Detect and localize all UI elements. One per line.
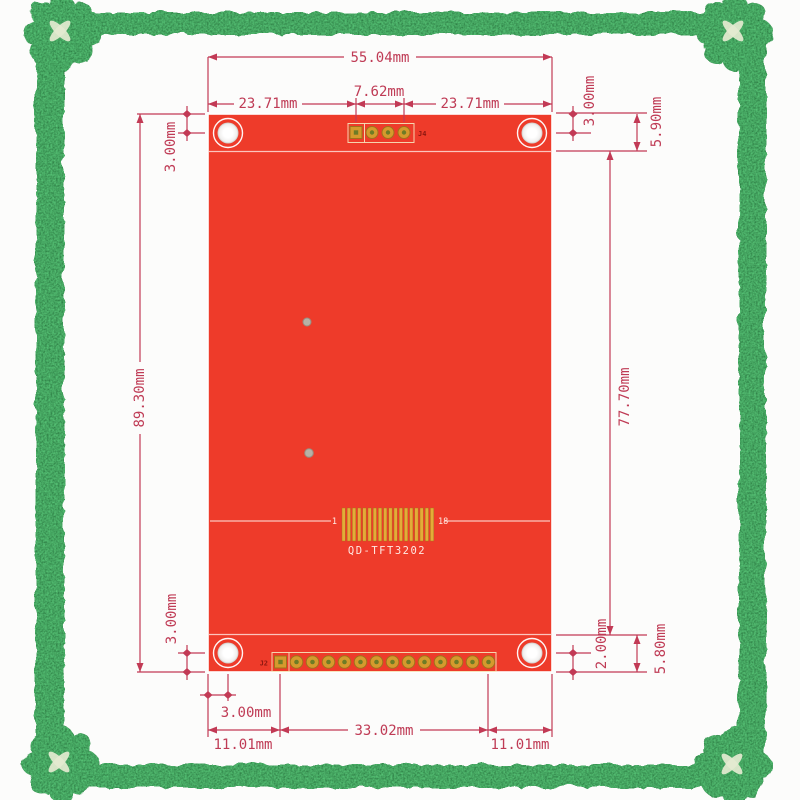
dim-top-right-span: 23.71mm <box>440 96 499 112</box>
j2-pad-hole <box>486 660 491 665</box>
fpc-finger-pad <box>378 508 381 541</box>
dim-bottom-right-edge-span: 11.01mm <box>490 737 549 753</box>
fpc-finger-pad <box>347 508 350 541</box>
dim-top-strip-height: 5.90mm <box>649 97 665 148</box>
via-dot <box>305 449 314 458</box>
dim-hole-offset-bottom-x: 3.00mm <box>221 705 272 721</box>
dim-hole-offset-top-left: 3.00mm <box>163 122 179 173</box>
dim-top-left-span: 23.71mm <box>238 96 297 112</box>
fpc-finger-pad <box>415 508 418 541</box>
fpc-pin1-label: 1 <box>332 517 337 527</box>
j2-pad-hole <box>390 660 395 665</box>
j2-label: J2 <box>260 660 268 668</box>
j2-pad-hole <box>294 660 299 665</box>
fpc-finger-pad <box>420 508 423 541</box>
mounting-hole <box>218 643 239 664</box>
fpc-finger-pad <box>430 508 433 541</box>
j2-pad-hole <box>342 660 347 665</box>
via-dot <box>303 318 311 326</box>
frame-band-top <box>58 11 734 33</box>
fpc-finger-pad <box>404 508 407 541</box>
j2-pad-hole <box>358 660 363 665</box>
dim-top-pin-span: 7.62mm <box>354 84 405 100</box>
j2-pad-hole <box>406 660 411 665</box>
pcb-board: J4 J2 1 18 QD-TFT3202 <box>208 114 552 672</box>
fpc-finger-pad <box>389 508 392 541</box>
pcb-outline <box>208 114 552 672</box>
dim-bottom-strip-height: 5.80mm <box>653 624 669 675</box>
dim-bottom-pin-row-span: 33.02mm <box>354 723 413 739</box>
dim-pin-row-offset-bottom-right: 2.00mm <box>594 619 610 670</box>
frame-band-left <box>34 30 62 763</box>
mounting-hole <box>522 643 543 664</box>
fpc-finger-pad <box>363 508 366 541</box>
j4-pad-hole <box>386 130 390 134</box>
j4-pad-hole <box>370 130 374 134</box>
fpc-finger-pad <box>410 508 413 541</box>
j2-pad-hole <box>454 660 459 665</box>
j2-pad-hole <box>310 660 315 665</box>
j2-pad-hole <box>374 660 379 665</box>
fpc-finger-pad <box>399 508 402 541</box>
pcb-dimension-drawing: J4 J2 1 18 QD-TFT3202 <box>0 0 800 800</box>
dim-hole-offset-bottom-left: 3.00mm <box>164 594 180 645</box>
frame-band-bottom <box>56 763 734 786</box>
j4-label: J4 <box>418 130 426 138</box>
j2-pad-hole <box>438 660 443 665</box>
j4-pad-hole <box>402 130 406 134</box>
fpc-finger-pad <box>373 508 376 541</box>
fpc-finger-pad <box>352 508 355 541</box>
j2-pad-hole <box>278 660 282 664</box>
mounting-hole <box>218 123 239 144</box>
frame-band-right <box>737 31 764 765</box>
fpc-finger-pad <box>358 508 361 541</box>
fpc-finger-pad <box>384 508 387 541</box>
j4-pad-hole <box>354 130 358 134</box>
dim-hole-offset-top-right: 3.00mm <box>582 76 598 127</box>
fpc-finger-pad <box>368 508 371 541</box>
fpc-pin18-label: 18 <box>438 517 448 527</box>
model-silkscreen: QD-TFT3202 <box>348 545 426 557</box>
dim-bottom-left-edge-span: 11.01mm <box>213 737 272 753</box>
fpc-finger-pad <box>425 508 428 541</box>
fpc-finger-pad <box>394 508 397 541</box>
dim-top-total-width: 55.04mm <box>350 50 409 66</box>
mounting-hole <box>522 123 543 144</box>
fpc-finger-pad <box>342 508 345 541</box>
product-image-stage: J4 J2 1 18 QD-TFT3202 <box>0 0 800 800</box>
j2-pad-hole <box>422 660 427 665</box>
dim-left-total-height: 89.30mm <box>132 368 148 427</box>
j2-pad-hole <box>470 660 475 665</box>
j2-pad-hole <box>326 660 331 665</box>
dim-right-inner-height: 77.70mm <box>617 367 633 426</box>
